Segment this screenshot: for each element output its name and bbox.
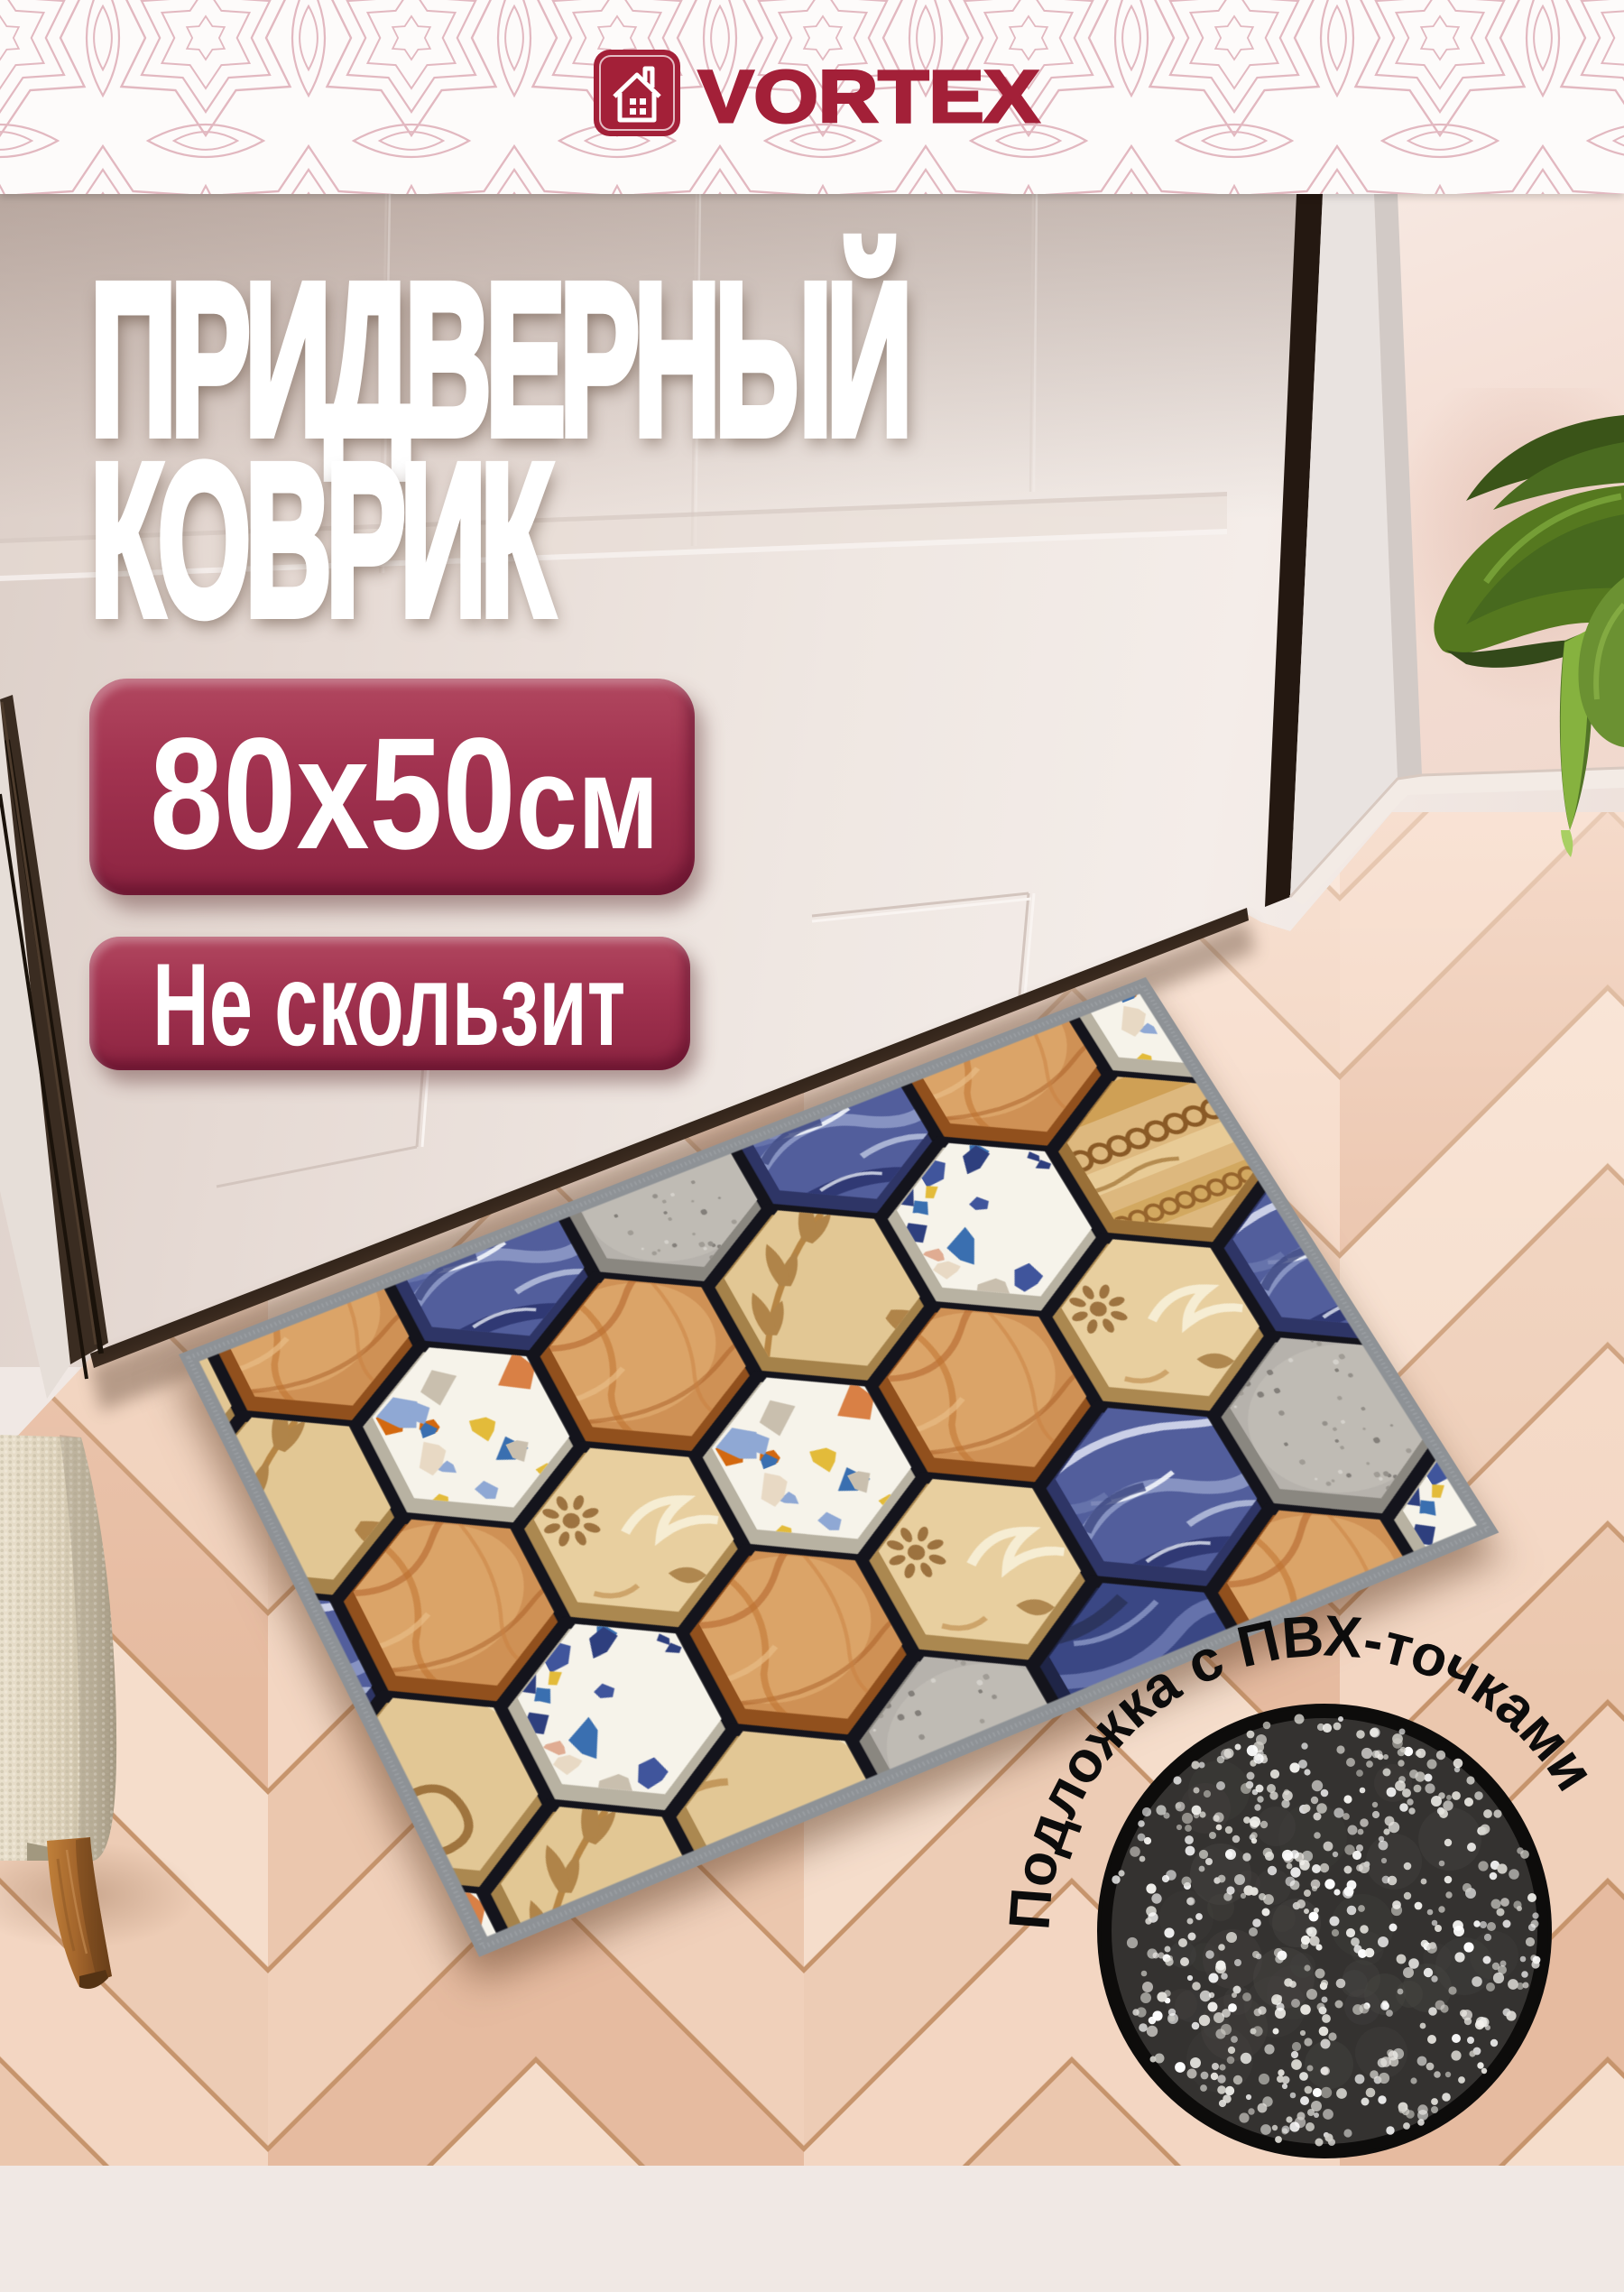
svg-text:Подложка с ПВХ-точками: Подложка с ПВХ-точками <box>996 1603 1608 1932</box>
svg-text:VORTEX: VORTEX <box>698 56 1039 138</box>
